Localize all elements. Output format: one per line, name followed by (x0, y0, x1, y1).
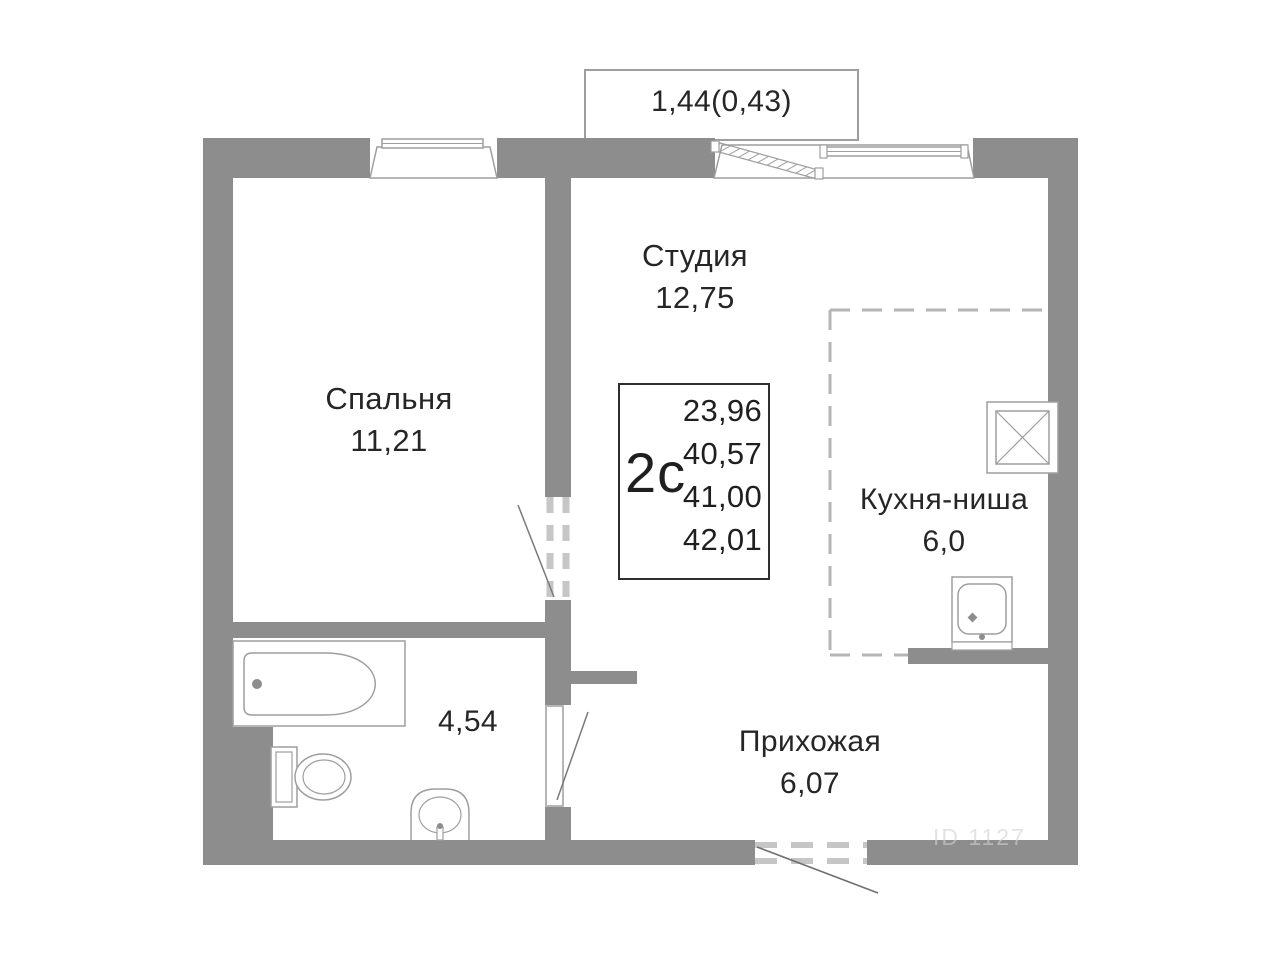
room-label-hallway: Прихожая 6,07 (680, 724, 940, 802)
hallway-area: 6,07 (680, 766, 940, 802)
kitchen-sink-icon (952, 577, 1012, 650)
studio-area: 12,75 (565, 280, 825, 316)
room-label-studio: Студия 12,75 (565, 238, 825, 316)
balcony-area-value: 1,44(0,43) (585, 84, 858, 120)
bathroom-door-icon (546, 706, 588, 806)
apartment-info-box: 2с 23,96 40,57 41,00 42,01 (618, 383, 770, 580)
kitchen-name: Кухня-ниша (814, 482, 1074, 518)
watermark-text: ID 1127 (933, 824, 1093, 851)
bedroom-window-icon (370, 139, 497, 178)
bathtub-icon (233, 641, 405, 726)
apartment-type-label: 2с (625, 445, 686, 501)
studio-name: Студия (565, 238, 825, 274)
room-label-bedroom: Спальня 11,21 (259, 381, 519, 459)
area-value-2: 41,00 (683, 480, 762, 514)
room-label-kitchen-niche: Кухня-ниша 6,0 (814, 482, 1074, 560)
area-value-1: 40,57 (683, 437, 762, 471)
bathroom-area-label: 4,54 (408, 704, 528, 740)
floor-plan: 1,44(0,43) Спальня 11,21 Студия 12,75 Ку… (0, 0, 1280, 960)
balcony-window-icon (820, 145, 968, 158)
bedroom-name: Спальня (259, 381, 519, 417)
bedroom-door-icon (518, 497, 566, 600)
hallway-name: Прихожая (680, 724, 940, 760)
washbasin-icon (411, 789, 469, 840)
bedroom-area: 11,21 (259, 423, 519, 459)
kitchen-area: 6,0 (814, 524, 1074, 560)
balcony-area-label: 1,44(0,43) (585, 84, 858, 120)
entrance-door-icon (755, 845, 878, 893)
toilet-icon (271, 747, 351, 807)
vent-shaft-icon (987, 402, 1058, 473)
area-value-living: 23,96 (683, 394, 762, 428)
area-value-total: 42,01 (683, 523, 762, 557)
apartment-area-values: 23,96 40,57 41,00 42,01 (683, 394, 762, 557)
bathroom-area-value: 4,54 (408, 704, 528, 740)
